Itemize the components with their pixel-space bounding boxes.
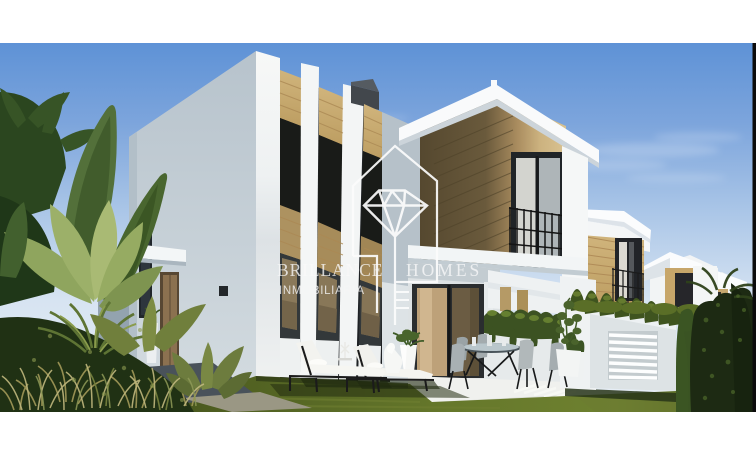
svg-text:HOMES: HOMES (406, 260, 482, 280)
svg-text:BRILLANCE: BRILLANCE (277, 260, 383, 280)
svg-text:INMOBILIARIA: INMOBILIARIA (279, 285, 365, 297)
